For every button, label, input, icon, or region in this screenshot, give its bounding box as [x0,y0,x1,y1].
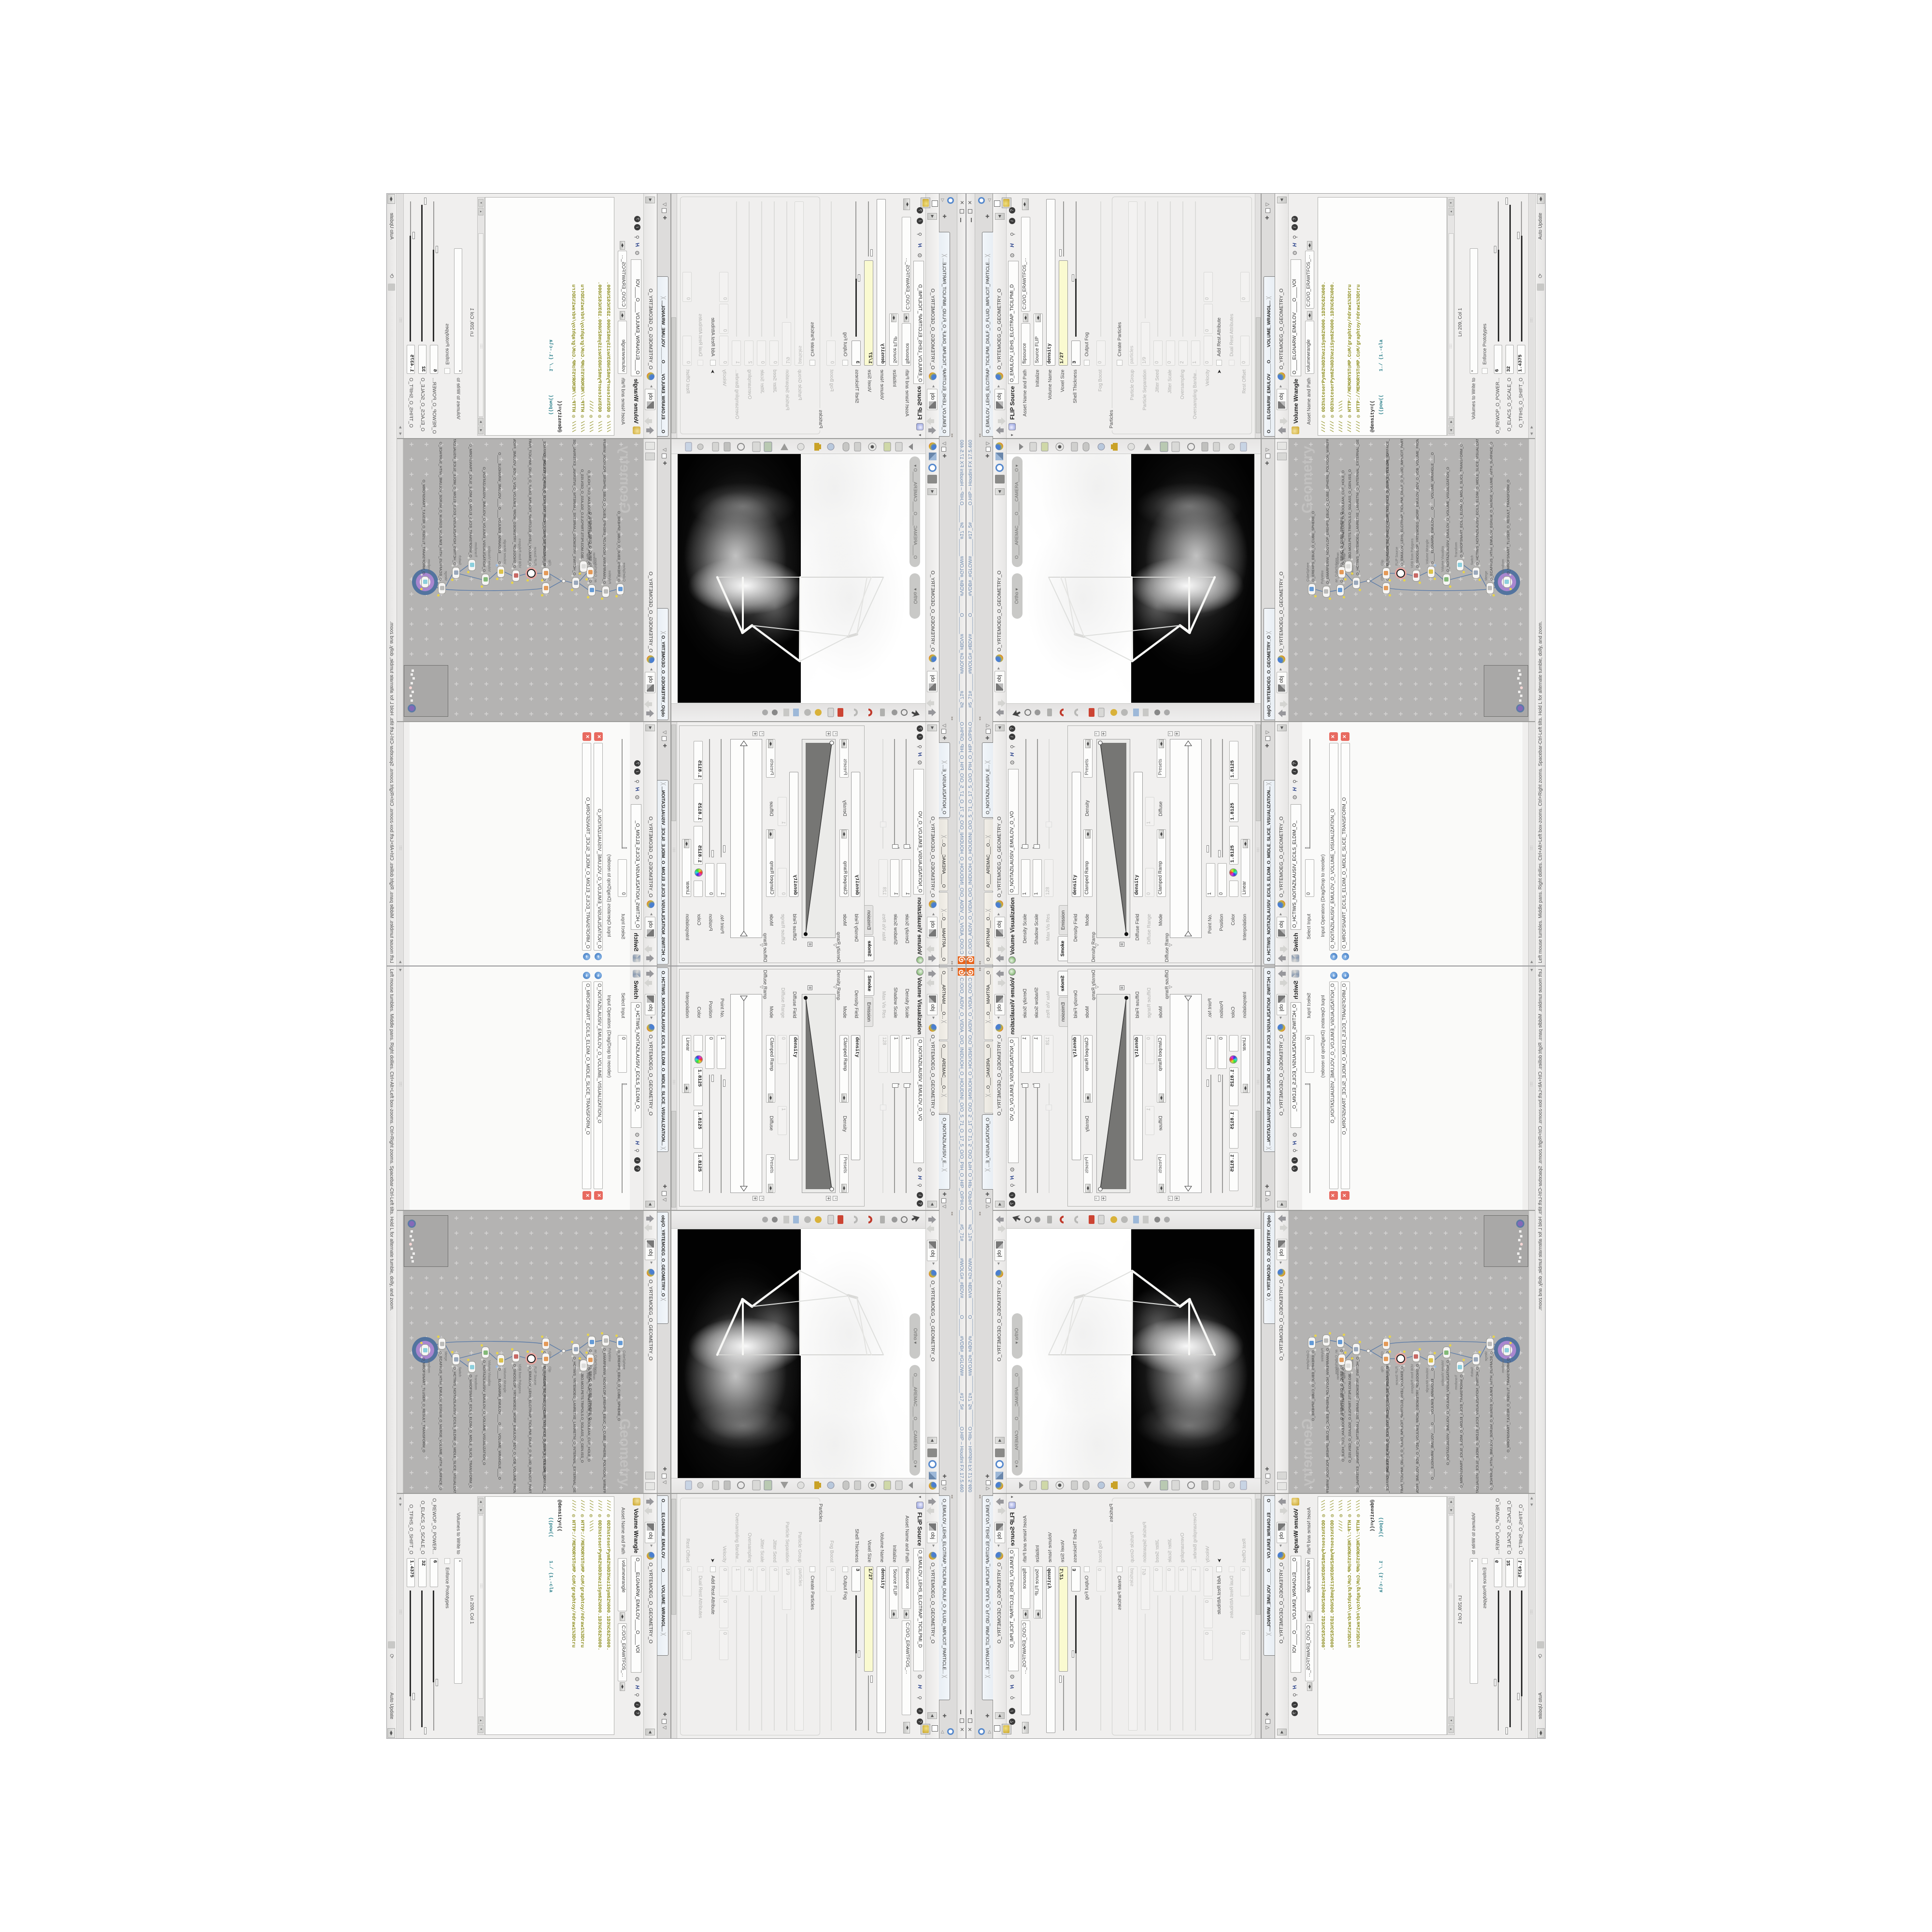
svg-text:Geometry: Geometry [617,446,633,513]
svg-text:Geometry: Geometry [617,1419,633,1486]
svg-text:Geometry: Geometry [1299,1419,1315,1486]
svg-text:Geometry: Geometry [1299,446,1315,513]
